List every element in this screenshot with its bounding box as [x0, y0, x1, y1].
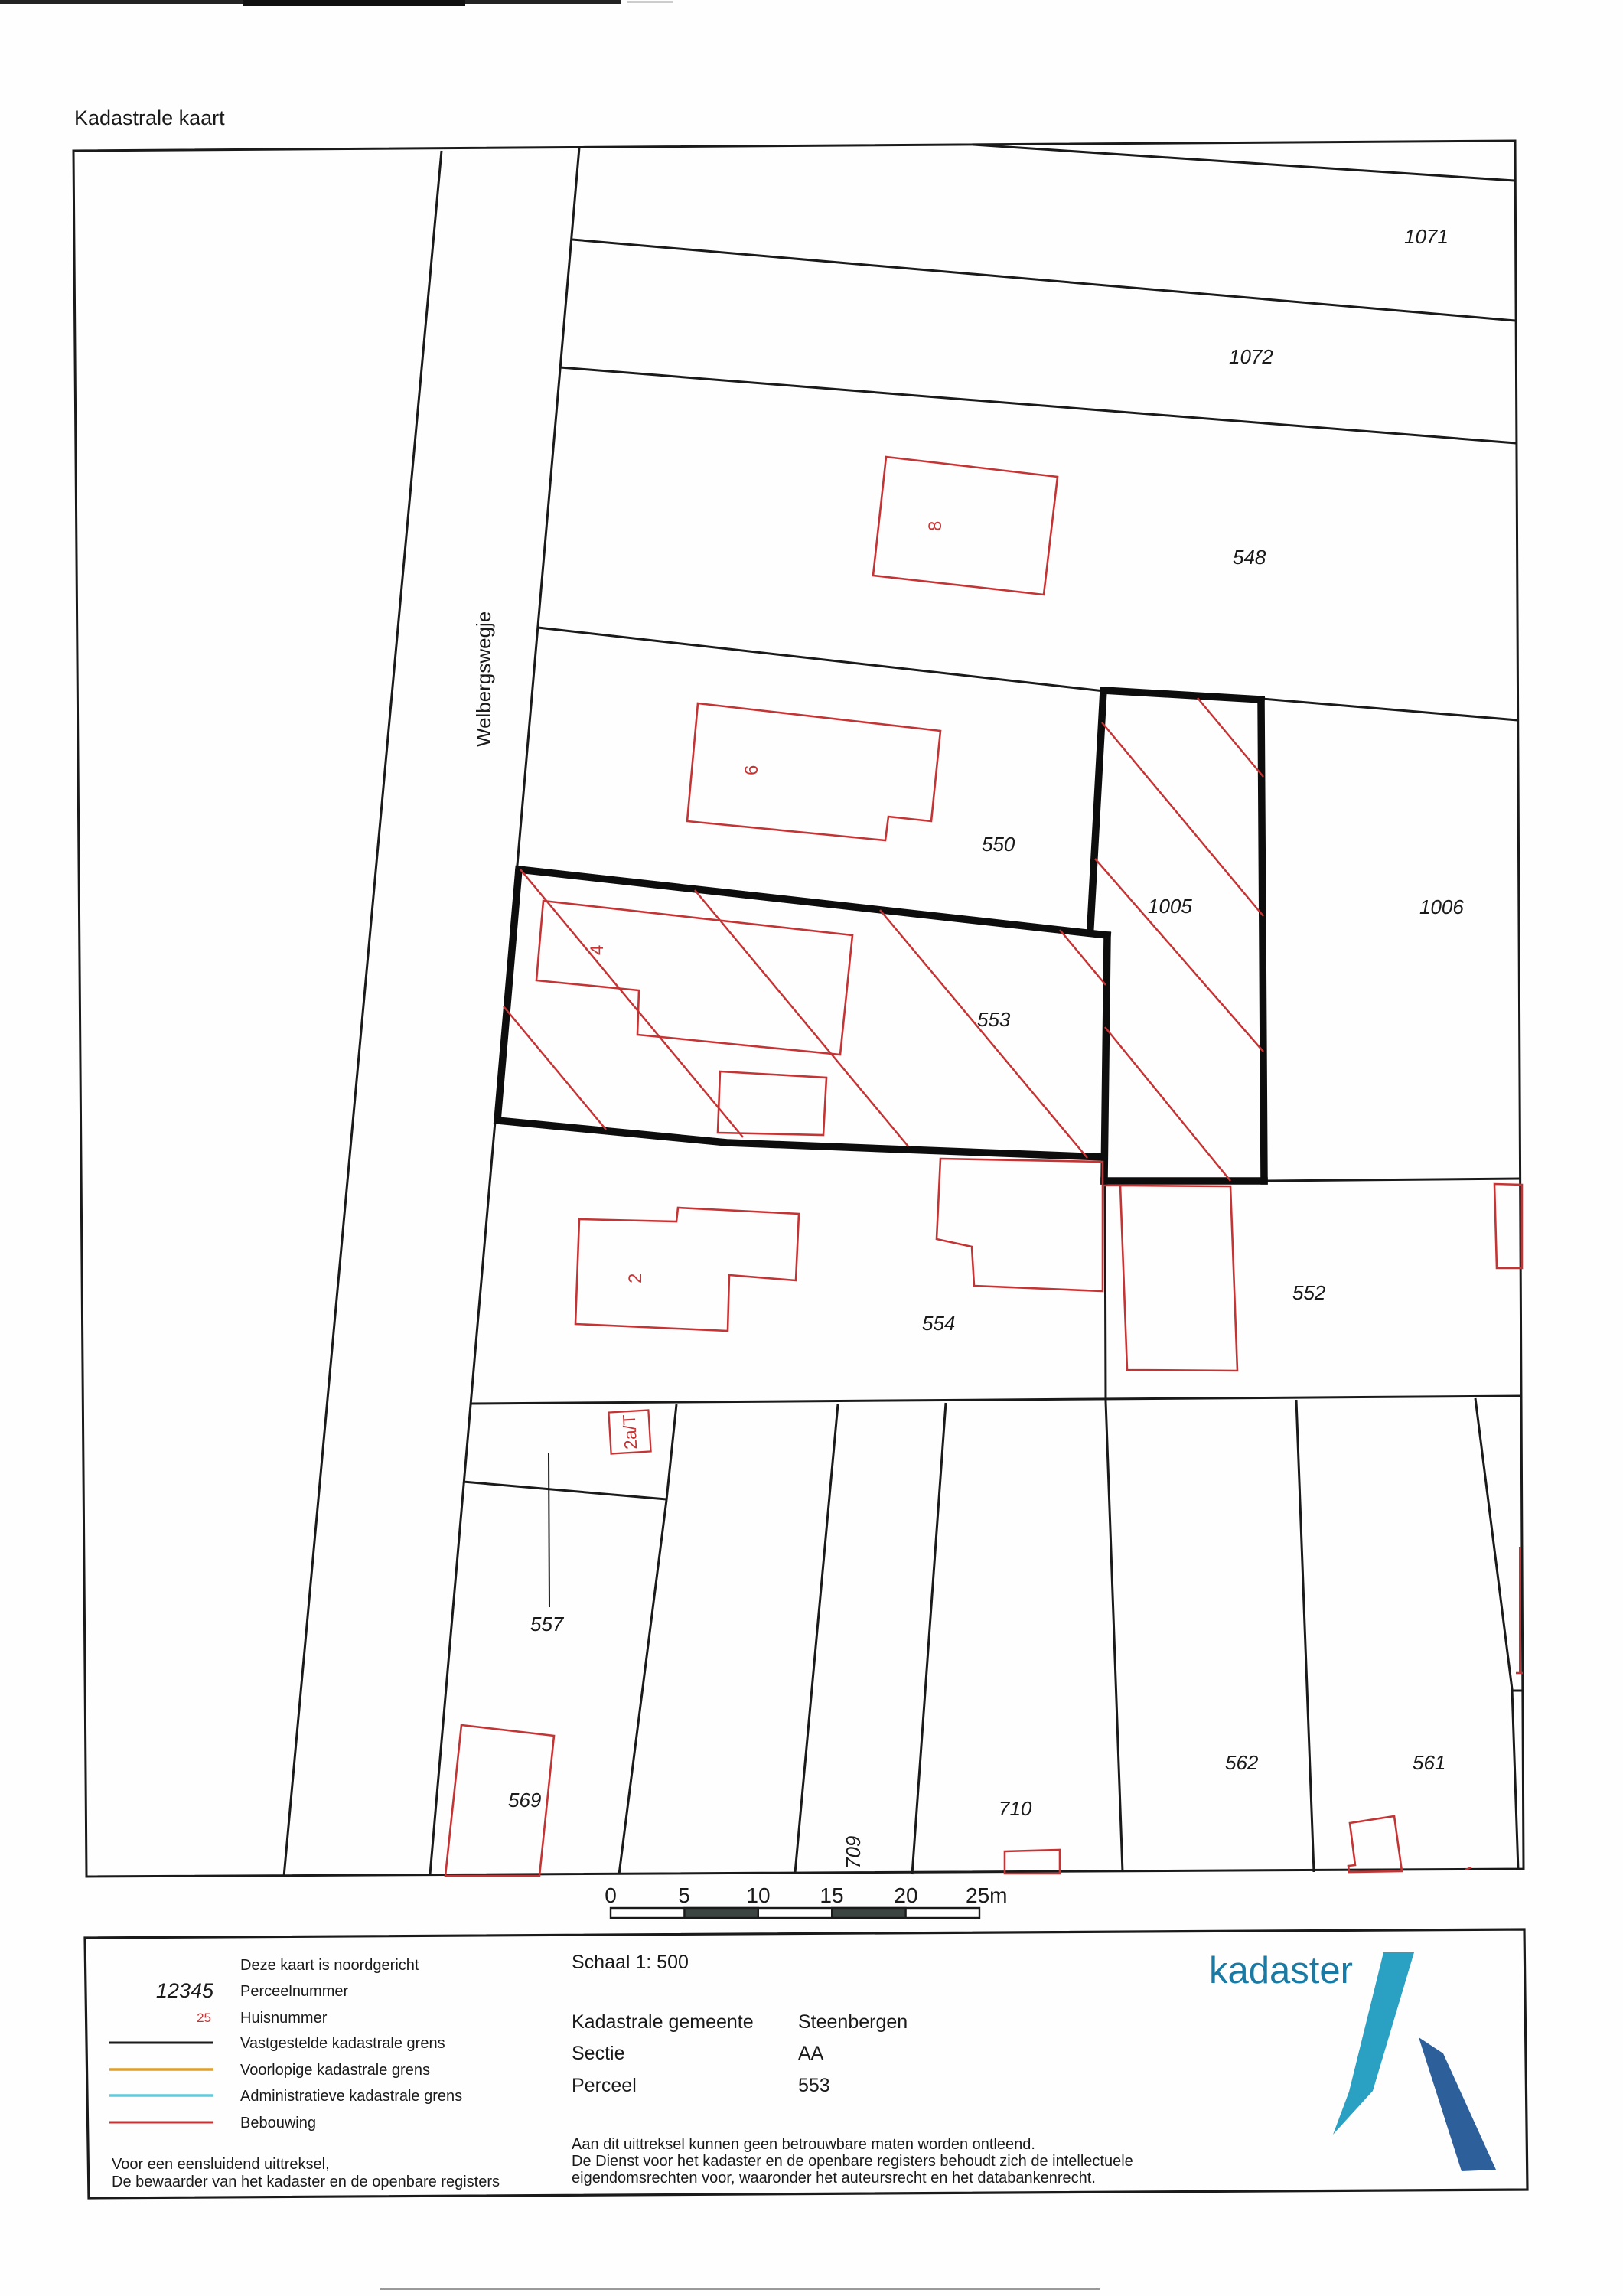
svg-text:25m: 25m [966, 1883, 1007, 1907]
svg-text:Bebouwing: Bebouwing [240, 2115, 316, 2131]
svg-text:Administratieve kadastrale gre: Administratieve kadastrale grens [240, 2088, 462, 2105]
svg-text:548: 548 [1233, 546, 1266, 569]
svg-text:De Dienst voor het kadaster en: De Dienst voor het kadaster en de openba… [572, 2153, 1133, 2170]
svg-text:10: 10 [746, 1883, 770, 1907]
svg-text:6: 6 [741, 765, 762, 775]
svg-text:552: 552 [1292, 1281, 1326, 1304]
svg-text:553: 553 [798, 2075, 830, 2096]
svg-text:eigendomsrechten voor, waarond: eigendomsrechten voor, waaronder het aut… [572, 2170, 1096, 2187]
svg-text:5: 5 [678, 1883, 690, 1907]
svg-text:Welbergswegje: Welbergswegje [472, 612, 495, 747]
svg-text:Kadastrale gemeente: Kadastrale gemeente [572, 2011, 754, 2033]
svg-text:1006: 1006 [1419, 895, 1464, 918]
svg-text:2: 2 [625, 1274, 646, 1283]
svg-text:710: 710 [999, 1797, 1032, 1820]
svg-text:557: 557 [530, 1613, 565, 1636]
svg-text:12345: 12345 [156, 1979, 214, 2002]
svg-text:8: 8 [925, 521, 946, 531]
svg-text:De bewaarder van het kadaster: De bewaarder van het kadaster en de open… [112, 2174, 500, 2190]
svg-text:Steenbergen: Steenbergen [798, 2011, 908, 2033]
svg-text:550: 550 [982, 833, 1015, 856]
svg-text:Voorlopige kadastrale grens: Voorlopige kadastrale grens [240, 2062, 430, 2079]
svg-text:0: 0 [605, 1883, 617, 1907]
svg-text:Huisnummer: Huisnummer [240, 2010, 328, 2027]
svg-text:569: 569 [508, 1789, 541, 1812]
svg-text:561: 561 [1413, 1751, 1445, 1774]
svg-text:Kadastrale kaart: Kadastrale kaart [74, 106, 225, 129]
svg-text:553: 553 [977, 1008, 1011, 1031]
svg-text:1071: 1071 [1404, 225, 1449, 248]
svg-text:Voor een eensluidend uittrekse: Voor een eensluidend uittreksel, [112, 2156, 330, 2173]
svg-text:1072: 1072 [1229, 345, 1273, 368]
svg-text:Schaal 1: 500: Schaal 1: 500 [572, 1952, 689, 1973]
svg-text:Aan dit uittreksel kunnen geen: Aan dit uittreksel kunnen geen betrouwba… [572, 2136, 1035, 2153]
svg-text:AA: AA [798, 2043, 824, 2064]
svg-text:554: 554 [922, 1312, 955, 1335]
svg-text:Sectie: Sectie [572, 2043, 624, 2064]
svg-text:15: 15 [820, 1883, 843, 1907]
svg-text:Vastgestelde kadastrale grens: Vastgestelde kadastrale grens [240, 2035, 445, 2052]
svg-text:Perceel: Perceel [572, 2075, 637, 2096]
svg-text:1005: 1005 [1148, 895, 1192, 918]
svg-text:Perceelnummer: Perceelnummer [240, 1983, 349, 2000]
svg-text:709: 709 [842, 1836, 865, 1869]
svg-text:kadaster: kadaster [1209, 1950, 1353, 1991]
svg-text:4: 4 [587, 945, 608, 955]
svg-text:Deze kaart is noordgericht: Deze kaart is noordgericht [240, 1957, 419, 1974]
svg-text:562: 562 [1225, 1751, 1259, 1774]
svg-text:20: 20 [894, 1883, 917, 1907]
svg-text:25: 25 [197, 2011, 211, 2025]
svg-text:2a/T: 2a/T [619, 1414, 641, 1450]
